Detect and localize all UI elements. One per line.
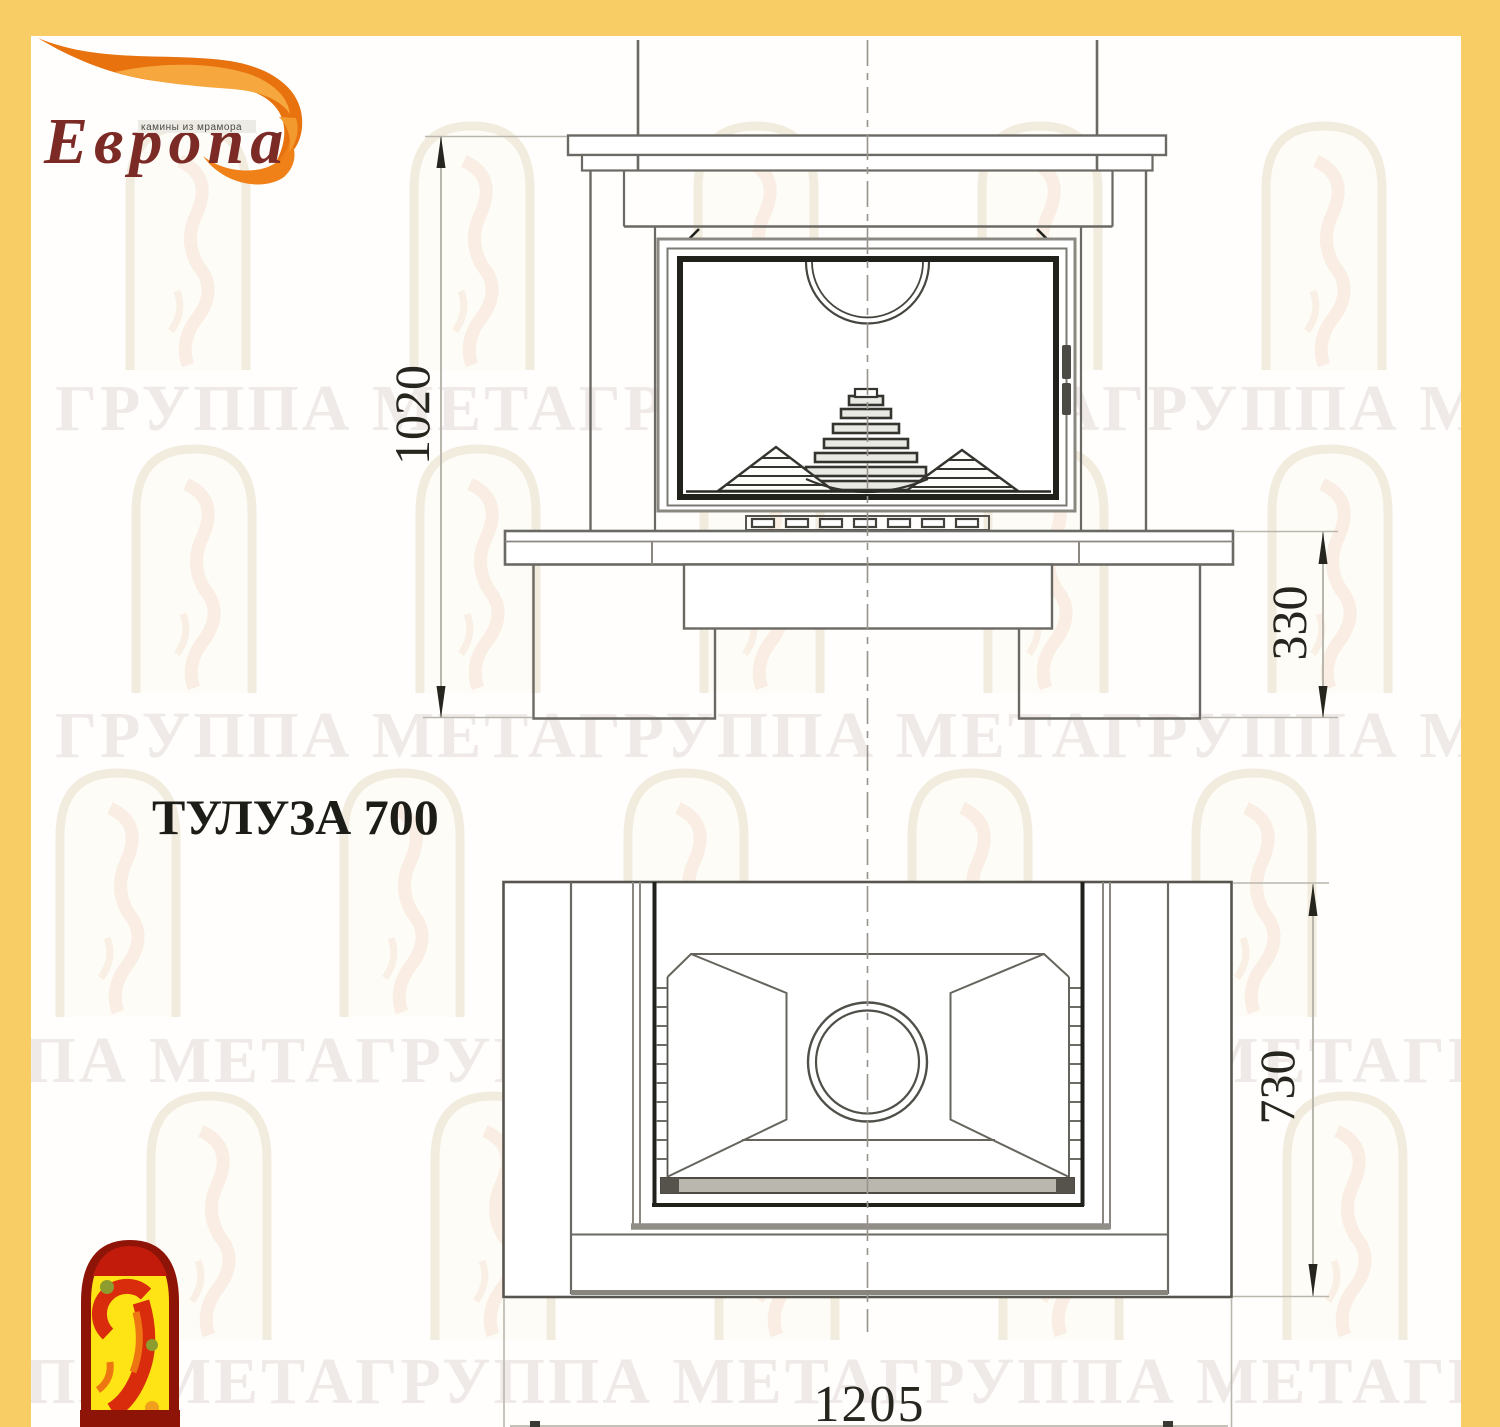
svg-text:ГРУППА МЕТАГРУППА МЕТАГРУППА М: ГРУППА МЕТАГРУППА МЕТАГРУППА МЕТАГ xyxy=(55,699,1500,772)
svg-text:Европа: Европа xyxy=(43,105,289,178)
svg-text:330: 330 xyxy=(1261,586,1317,661)
svg-text:1205: 1205 xyxy=(814,1376,926,1427)
svg-text:ППА МЕТАГРУППА МЕТАГРУППА МЕТА: ППА МЕТАГРУППА МЕТАГРУППА МЕТАГРУПП xyxy=(0,1345,1500,1418)
svg-text:1020: 1020 xyxy=(384,365,440,465)
svg-text:730: 730 xyxy=(1249,1050,1305,1125)
svg-text:камины из мрамора: камины из мрамора xyxy=(141,122,242,133)
